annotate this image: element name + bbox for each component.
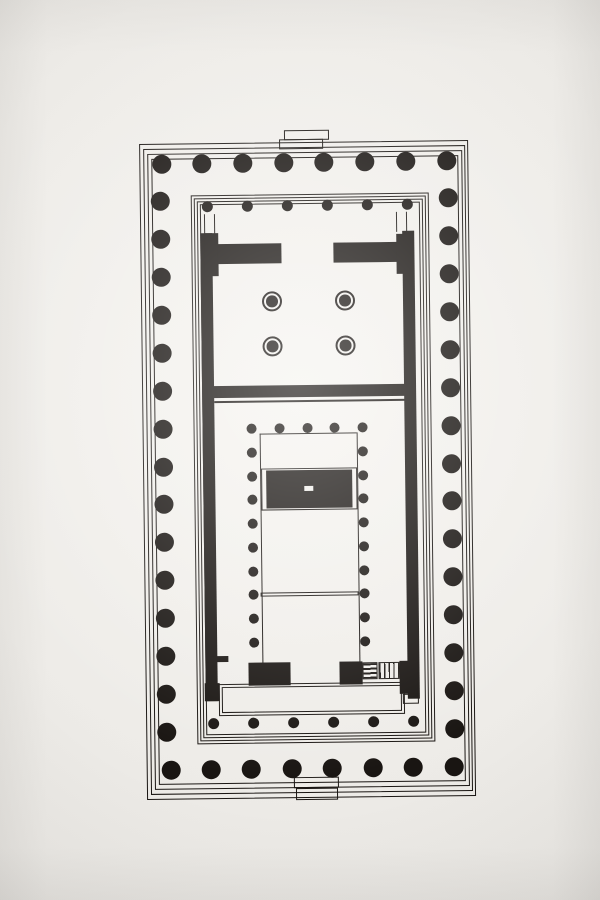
- west-chamber-column-ring-inner: [339, 295, 351, 307]
- west-door-wall-right: [333, 242, 397, 263]
- west-anta-right: [396, 234, 410, 274]
- peristyle-column: [442, 529, 461, 548]
- peristyle-column: [155, 571, 174, 590]
- peristyle-column: [323, 758, 342, 777]
- peristyle-column: [440, 302, 459, 321]
- cella-column: [274, 423, 284, 433]
- cella-column: [360, 636, 370, 646]
- stairway-rungs: [362, 662, 377, 679]
- peristyle-column: [444, 643, 463, 662]
- peristyle-column: [444, 757, 463, 776]
- porch-column: [328, 716, 339, 727]
- cella-column: [359, 565, 369, 575]
- cella-column: [248, 566, 258, 576]
- west-chamber-column-ring-inner: [266, 296, 278, 308]
- peristyle-column: [443, 567, 462, 586]
- peristyle-column: [153, 457, 172, 476]
- porch-column: [208, 718, 219, 729]
- cella-column: [248, 543, 258, 553]
- peristyle-column: [441, 454, 460, 473]
- peristyle-column: [438, 189, 457, 208]
- peristyle-column: [404, 757, 423, 776]
- peristyle-column: [152, 306, 171, 325]
- north-ramp-outline: [279, 139, 323, 150]
- porch-column: [321, 199, 332, 210]
- stairway-hatch: [378, 662, 399, 679]
- peristyle-column: [154, 495, 173, 514]
- peristyle-column: [152, 344, 171, 363]
- peristyle-column: [156, 684, 175, 703]
- east-porch-floor-outline: [222, 685, 402, 713]
- west-chamber-column-ring-inner: [340, 340, 352, 352]
- peristyle-column: [151, 230, 170, 249]
- peristyle-column: [315, 152, 334, 171]
- east-wall-stub-left: [206, 656, 228, 662]
- temple-floor-plan: [139, 126, 477, 802]
- east-anta-left: [205, 683, 220, 701]
- peristyle-column: [242, 759, 261, 778]
- peristyle-column: [192, 154, 211, 173]
- peristyle-column: [152, 381, 171, 400]
- porch-column: [408, 715, 419, 726]
- peristyle-column: [441, 416, 460, 435]
- peristyle-column: [154, 533, 173, 552]
- peristyle-column: [440, 340, 459, 359]
- porch-column: [368, 716, 379, 727]
- east-door-wall-right: [339, 661, 362, 684]
- cella-column: [302, 423, 312, 433]
- south-ramp-outline: [296, 788, 338, 801]
- cella-column: [247, 471, 257, 481]
- porch-column: [248, 717, 259, 728]
- cella-column: [247, 424, 257, 434]
- peristyle-column: [396, 151, 415, 170]
- anta-step-line-a: [204, 214, 205, 234]
- peristyle-column: [151, 268, 170, 287]
- peristyle-column: [439, 226, 458, 245]
- cella-column: [358, 470, 368, 480]
- cella-column: [357, 422, 367, 432]
- peristyle-column: [156, 647, 175, 666]
- porch-column: [361, 199, 372, 210]
- peristyle-column: [150, 192, 169, 211]
- cella-column: [249, 638, 259, 648]
- anta-step-line-d: [406, 212, 407, 232]
- west-door-wall-left: [217, 243, 281, 264]
- cella-column: [359, 541, 369, 551]
- cross-wall: [211, 384, 412, 398]
- porch-column: [288, 717, 299, 728]
- peristyle-column: [439, 264, 458, 283]
- peristyle-column: [440, 378, 459, 397]
- peristyle-column: [157, 722, 176, 741]
- peristyle-column: [443, 605, 462, 624]
- peristyle-column: [161, 760, 180, 779]
- peristyle-column: [355, 152, 374, 171]
- west-chamber-column-ring-inner: [267, 341, 279, 353]
- peristyle-column: [153, 419, 172, 438]
- porch-column: [201, 201, 212, 212]
- porch-column: [401, 198, 412, 209]
- peristyle-column: [155, 609, 174, 628]
- peristyle-column: [233, 153, 252, 172]
- anta-step-line-b: [214, 214, 215, 234]
- peristyle-column: [282, 759, 301, 778]
- cella-column: [247, 447, 257, 457]
- statue-base-marker: [304, 486, 313, 491]
- east-anta-right: [399, 661, 417, 694]
- peristyle-column: [274, 153, 293, 172]
- photo-background: [0, 0, 600, 900]
- peristyle-column: [437, 151, 456, 170]
- peristyle-column: [363, 758, 382, 777]
- south-ramp-outline: [294, 777, 339, 789]
- peristyle-column: [152, 154, 171, 173]
- peristyle-column: [442, 492, 461, 511]
- cella-column: [358, 446, 368, 456]
- porch-column: [241, 200, 252, 211]
- east-door-wall-left: [248, 662, 290, 686]
- peristyle-column: [201, 760, 220, 779]
- peristyle-column: [445, 719, 464, 738]
- peristyle-column: [444, 681, 463, 700]
- porch-column: [281, 200, 292, 211]
